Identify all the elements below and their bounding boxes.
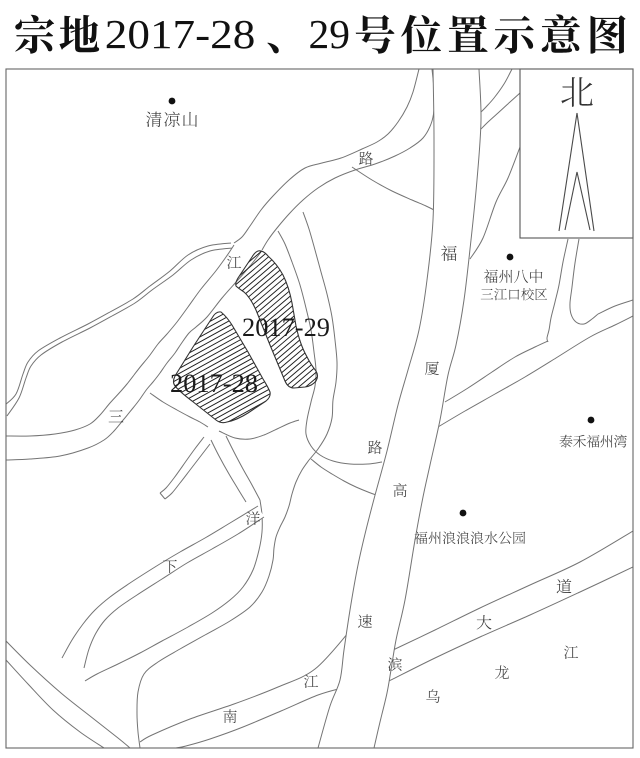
svg-text:2017-29: 2017-29 (242, 312, 330, 342)
svg-text:2017-28: 2017-28 (170, 368, 258, 398)
svg-text:29: 29 (309, 11, 351, 57)
svg-text:2017-28: 2017-28 (105, 11, 256, 57)
